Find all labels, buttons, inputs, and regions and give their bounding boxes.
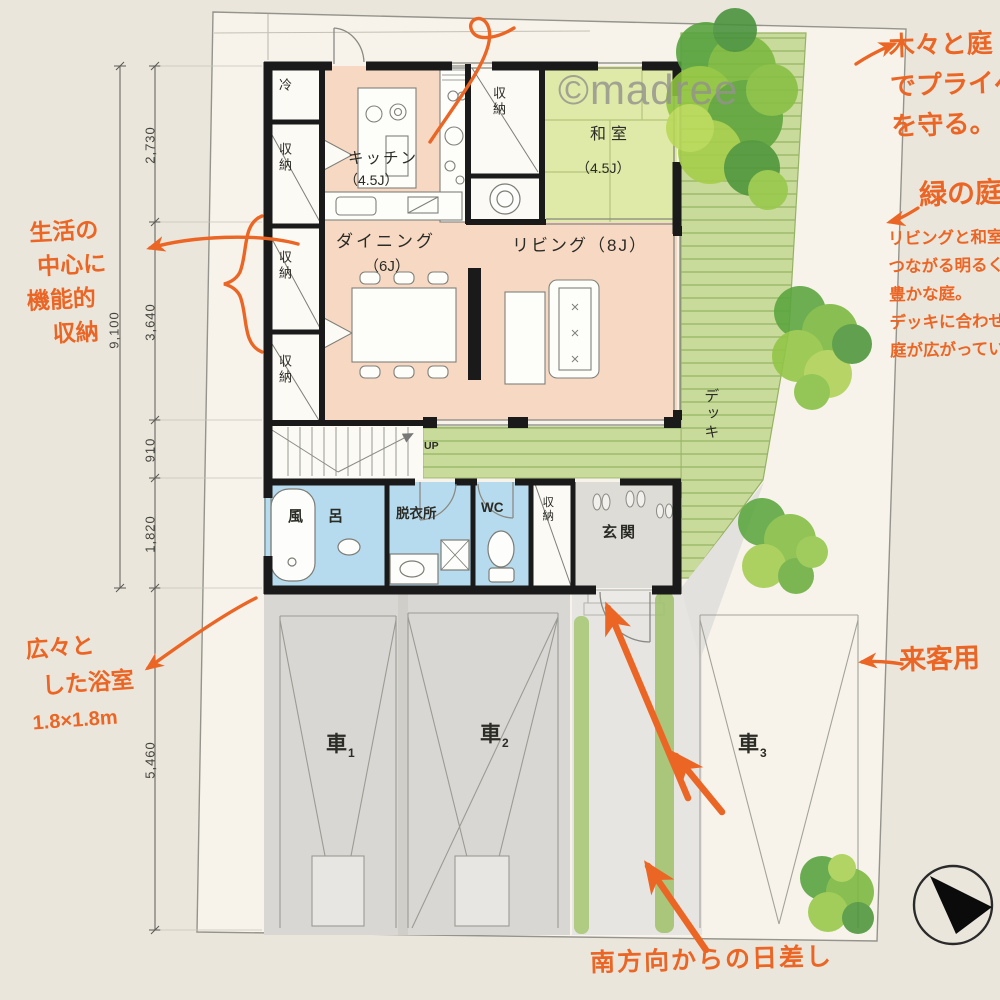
living-furniture [505, 280, 599, 384]
floor-plan-image: ©madree キッチン （4.5J） ダイニング （6J） リビング（8J） … [0, 0, 1000, 1000]
dining-furniture [352, 272, 456, 378]
plan-drawing [0, 0, 1000, 1000]
north-arrow-icon [914, 866, 992, 944]
